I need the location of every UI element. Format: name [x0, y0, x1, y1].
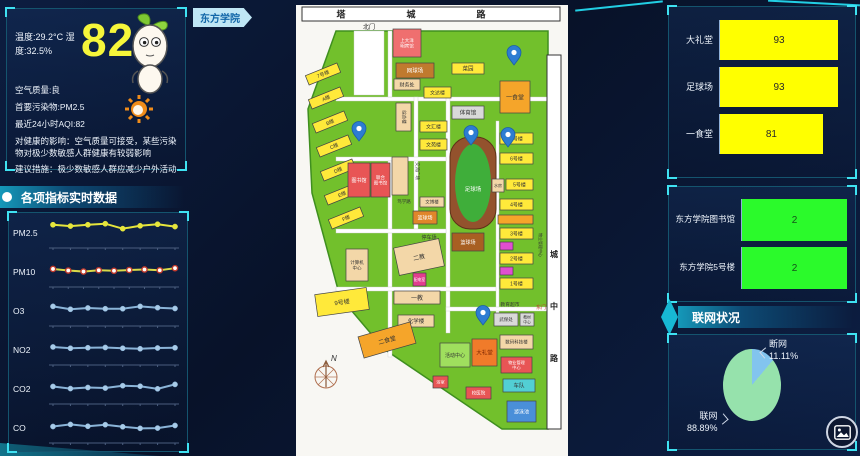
indicator-row-PM10: PM10 [9, 252, 187, 291]
indicator-label: PM10 [9, 267, 45, 277]
dashboard: 温度:29.2°C 湿度:32.5% 82 空气质量:良 首要污 [0, 0, 860, 456]
road-label: 中 [550, 301, 558, 311]
bar-category-label: 大礼堂 [673, 35, 719, 45]
map-building: 车队 [503, 379, 535, 392]
map-building: 菜园 [452, 63, 484, 74]
svg-text:大礼堂: 大礼堂 [476, 349, 493, 357]
indicator-label: NO2 [9, 345, 45, 355]
indicator-label: CO2 [9, 384, 45, 394]
map-text-label: 教育超市 [500, 301, 519, 308]
bar-category-label: 东方学院图书馆 [673, 215, 741, 225]
svg-text:一教: 一教 [411, 294, 423, 302]
connected-label: 联网 [687, 411, 718, 423]
map-text-label: 物业管理中心 [538, 233, 544, 257]
sparkline-list: PM2.5PM10O3NO2CO2CO [9, 213, 187, 447]
bar-row: 东方学院图书馆2 [673, 199, 847, 241]
bar-track: 2 [741, 199, 847, 241]
map-building [498, 215, 533, 224]
svg-text:校医院: 校医院 [472, 390, 486, 397]
map-building: 上大洋明宾馆 [393, 29, 421, 57]
map-building: 水房 [492, 179, 504, 192]
indicators-title: 各项指标实时数据 [21, 189, 117, 206]
bar-category-label: 足球场 [673, 82, 719, 92]
map-building: 文达楼 [424, 87, 451, 98]
map-building: 武保处 [494, 313, 518, 326]
svg-text:6号楼: 6号楼 [510, 155, 523, 162]
road-label: 城 [406, 9, 415, 20]
indicator-row-CO2: CO2 [9, 369, 187, 408]
bar-row: 东方学院5号楼2 [673, 247, 847, 289]
indicator-row-PM2.5: PM2.5 [9, 213, 187, 252]
map-text-label: 交流广场 [414, 162, 421, 180]
image-button[interactable] [826, 416, 858, 448]
map-building: 游泳池 [507, 401, 536, 422]
map-building: 体育馆 [452, 106, 484, 119]
air-quality-text: 空气质量:良 [15, 85, 125, 97]
indicator-row-O3: O3 [9, 291, 187, 330]
map-building: 一教 [394, 291, 440, 304]
svg-text:明宾馆: 明宾馆 [400, 42, 414, 49]
svg-text:篮球场: 篮球场 [460, 239, 475, 246]
svg-text:文达楼: 文达楼 [430, 89, 445, 96]
svg-text:浴室: 浴室 [436, 379, 444, 386]
temp-humidity-text: 温度:29.2°C 湿度:32.5% [15, 31, 81, 59]
svg-text:中心: 中心 [523, 319, 531, 324]
svg-text:网球场: 网球场 [407, 67, 424, 75]
air-quality-details: 空气质量:良 首要污染物:PM2.5 最近24小时AQI:82 对健康的影响：空… [15, 85, 179, 181]
map-building: 文博楼 [420, 197, 444, 207]
map-building: 4号楼 [500, 199, 533, 210]
svg-text:2号楼: 2号楼 [510, 255, 523, 262]
map-building: 篮球场 [452, 233, 484, 251]
indicators-chart-panel: PM2.5PM10O3NO2CO2CO [8, 212, 188, 452]
map-building: 足球场 [450, 137, 496, 229]
svg-text:水房: 水房 [494, 182, 502, 188]
usage-bar-chart: 大礼堂93足球场93一食堂81 [673, 13, 847, 173]
map-building: 大礼堂 [472, 339, 497, 366]
image-icon [834, 425, 851, 440]
bar: 2 [742, 199, 847, 241]
disconnected-label: 断网 [769, 339, 798, 351]
indicators-header: 各项指标实时数据 [0, 186, 192, 208]
svg-text:综合楼: 综合楼 [400, 110, 407, 124]
network-title: 联网状况 [692, 309, 740, 326]
indicator-label: CO [9, 423, 45, 433]
bar-row: 足球场93 [673, 67, 847, 107]
svg-text:4号楼: 4号楼 [510, 201, 523, 208]
map-building: 3号楼 [500, 228, 533, 239]
svg-text:活动中心: 活动中心 [445, 352, 465, 359]
bar-category-label: 东方学院5号楼 [673, 263, 741, 273]
map-text-label: 停车场 [421, 234, 436, 241]
svg-text:N: N [331, 354, 337, 363]
bar-row: 大礼堂93 [673, 20, 847, 60]
map-building: 物业管理中心 [501, 357, 532, 373]
connected-pct: 88.89% [687, 423, 718, 435]
bar: 2 [742, 247, 847, 289]
svg-text:武保处: 武保处 [499, 316, 513, 323]
indicator-label: PM2.5 [9, 228, 45, 238]
map-building: 财务处 [394, 79, 420, 90]
road-label: 塔 [336, 9, 346, 20]
aqi-24h-text: 最近24小时AQI:82 [15, 119, 125, 131]
bar: 81 [720, 114, 823, 154]
campus-map: 塔城路城中路上大洋明宾馆网球场菜园一食堂体育馆财务处综合楼文达楼文汇楼文苑楼7号… [296, 5, 568, 456]
svg-text:中心: 中心 [512, 364, 521, 371]
map-building [392, 157, 408, 195]
road-label: 路 [476, 9, 486, 20]
campus-tab-eastern-college[interactable]: 东方学院 [193, 8, 252, 27]
map-building: 6号楼 [500, 153, 533, 164]
svg-text:足球场: 足球场 [465, 185, 482, 193]
bar-row: 一食堂81 [673, 114, 847, 154]
map-building: 活动中心 [440, 343, 470, 367]
svg-text:菜园: 菜园 [462, 65, 474, 73]
air-quality-panel: 温度:29.2°C 湿度:32.5% 82 空气质量:良 首要污 [6, 8, 186, 170]
map-building: 计算机中心 [346, 249, 368, 281]
indicator-row-CO: CO [9, 408, 187, 447]
advice-text: 建议措施：极少数敏感人群应减少户外活动 [15, 164, 179, 176]
map-building: 1号楼 [500, 278, 533, 289]
bar-track: 93 [719, 67, 847, 107]
bar-category-label: 一食堂 [673, 129, 719, 139]
map-building: 数码科技楼 [500, 335, 533, 349]
primary-pollutant-text: 首要污染物:PM2.5 [15, 102, 125, 114]
map-building: 图书馆 [348, 163, 370, 197]
map-building: 篮球场 [413, 211, 437, 224]
svg-text:文博楼: 文博楼 [425, 199, 439, 206]
indicator-row-NO2: NO2 [9, 330, 187, 369]
road-label: 路 [550, 353, 559, 363]
svg-text:配电室: 配电室 [414, 277, 426, 282]
svg-text:财务处: 财务处 [399, 81, 414, 88]
svg-text:图书馆: 图书馆 [374, 179, 388, 186]
road-label: 城 [550, 249, 558, 259]
bar: 93 [720, 20, 838, 60]
svg-text:文汇楼: 文汇楼 [426, 123, 441, 130]
map-building: 网球场 [396, 63, 434, 78]
disconnected-pct: 11.11% [769, 351, 798, 363]
map-building: 校医院 [466, 387, 491, 399]
network-header: 联网状况 [678, 306, 860, 328]
svg-text:1号楼: 1号楼 [510, 280, 523, 287]
map-building: 教材中心 [520, 313, 534, 326]
top-accent-line [575, 0, 663, 11]
svg-text:教材: 教材 [523, 315, 531, 320]
diamond-accent-icon [661, 299, 678, 335]
pie-connector [717, 413, 728, 424]
map-building [500, 267, 513, 275]
map-building: 5号楼 [506, 179, 533, 190]
svg-text:5号楼: 5号楼 [513, 181, 526, 188]
bar: 93 [720, 67, 838, 107]
svg-text:车队: 车队 [513, 382, 525, 390]
header-dot-icon [2, 192, 12, 202]
map-text-label: 东门 [536, 304, 546, 311]
indicator-label: O3 [9, 306, 45, 316]
usage-bar-chart-panel: 大礼堂93足球场93一食堂81 [668, 6, 856, 178]
map-building: 联合图书馆 [371, 163, 390, 197]
map-building: 综合楼 [396, 103, 411, 131]
map-text-label: 笃学路 [397, 198, 411, 205]
bar-track: 93 [719, 20, 847, 60]
map-text-label: 北门 [363, 23, 375, 31]
bar-track: 2 [741, 247, 847, 289]
svg-text:文苑楼: 文苑楼 [426, 141, 441, 148]
svg-text:图书馆: 图书馆 [351, 177, 366, 184]
svg-text:数码科技楼: 数码科技楼 [505, 339, 528, 346]
map-building [500, 242, 513, 250]
svg-text:篮球场: 篮球场 [417, 214, 432, 221]
svg-text:游泳池: 游泳池 [514, 408, 529, 415]
health-impact-text: 对健康的影响：空气质量可接受，某些污染物对极少数敏感人群健康有较弱影响 [15, 136, 179, 160]
svg-text:3号楼: 3号楼 [510, 230, 523, 237]
map-building: 配电室 [413, 273, 426, 286]
svg-text:一食堂: 一食堂 [506, 93, 524, 101]
map-building: 文苑楼 [420, 139, 447, 150]
map-building: 文汇楼 [420, 121, 447, 132]
map-building: 一食堂 [500, 81, 530, 113]
svg-text:中心: 中心 [353, 264, 362, 271]
device-bar-chart: 东方学院图书馆2东方学院5号楼2 [673, 193, 847, 297]
map-building: 2号楼 [500, 253, 533, 264]
pie-label-connected: 联网 88.89% [687, 411, 718, 434]
pie-label-disconnected: 断网 11.11% [769, 339, 798, 362]
device-bar-chart-panel: 东方学院图书馆2东方学院5号楼2 [668, 186, 856, 302]
svg-text:体育馆: 体育馆 [460, 109, 477, 117]
bar-track: 81 [719, 114, 847, 154]
map-building: 浴室 [433, 376, 448, 388]
